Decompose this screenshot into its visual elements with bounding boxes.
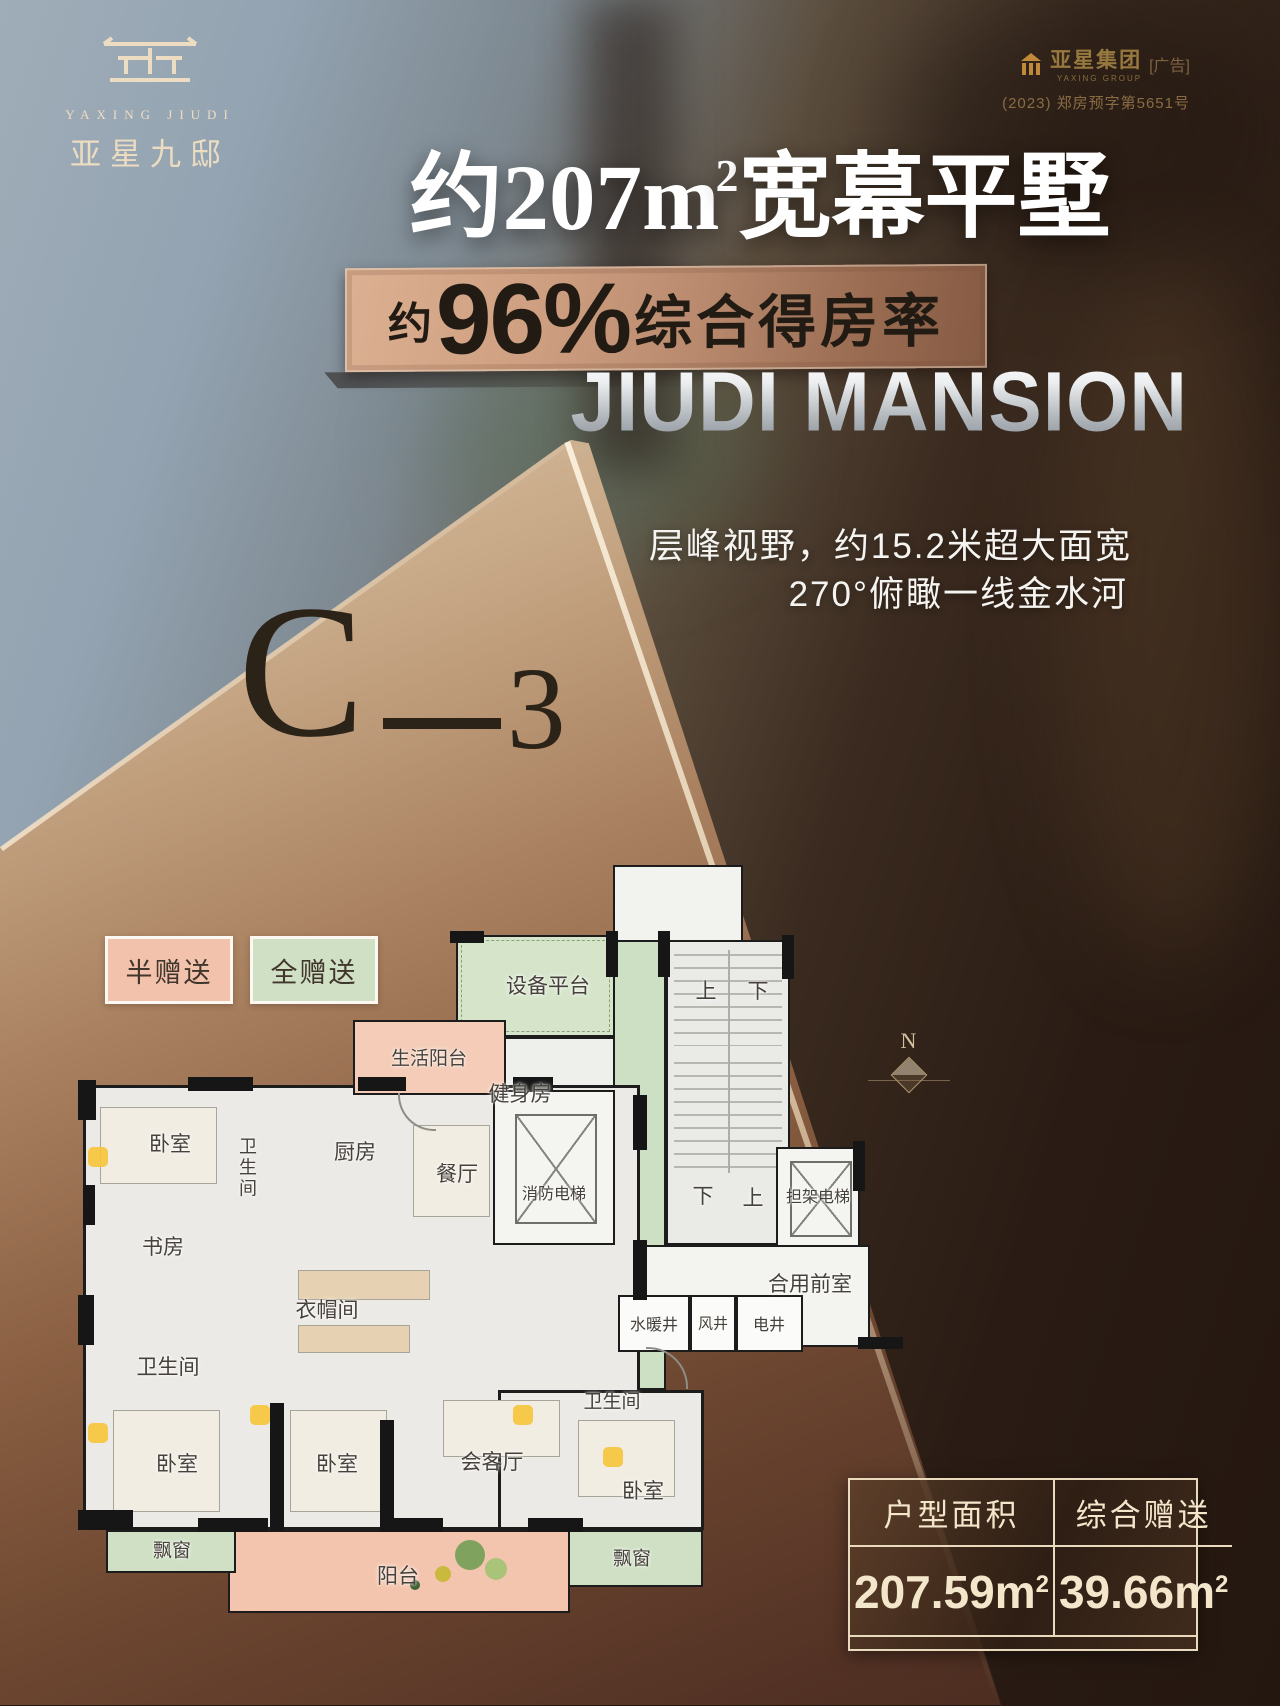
- wall: [633, 1240, 647, 1300]
- fire-elevator-room: [493, 1090, 615, 1245]
- wall: [78, 1080, 96, 1120]
- room-label-bath-se: 卫生间: [583, 1387, 640, 1414]
- top-entry-room: [613, 865, 743, 943]
- elevator-x-symbol: [515, 1114, 597, 1224]
- room-label-electric-shaft: 电井: [753, 1311, 785, 1335]
- wall: [858, 1337, 903, 1349]
- room-label-bedroom-nw: 卧室: [149, 1128, 191, 1158]
- wall: [380, 1420, 394, 1532]
- room-label-equipment-platform: 设备平台: [506, 970, 590, 1000]
- unit-number: 3: [507, 656, 566, 762]
- stair-label-down: 下: [748, 975, 769, 1005]
- light-dot: [603, 1447, 623, 1467]
- corp-name-en: YAXING GROUP: [1050, 74, 1142, 83]
- wall: [270, 1403, 284, 1531]
- presale-permit: (2023) 郑房预字第5651号: [1002, 92, 1190, 113]
- brand-logo: YAXING JIUDI 亚星九邸: [40, 34, 260, 174]
- north-compass: N: [886, 1028, 932, 1088]
- door-arc: [646, 1347, 688, 1389]
- room-label-balcony: 阳台: [377, 1560, 419, 1590]
- gift-area-sup: 2: [1215, 1571, 1228, 1598]
- gift-area-value: 39.66m: [1059, 1566, 1215, 1618]
- room-label-bath-north: 卫生间: [234, 1137, 260, 1200]
- light-dot: [88, 1423, 108, 1443]
- room-label-stretcher-elevator: 担架电梯: [786, 1183, 850, 1207]
- stair-label-up: 上: [696, 975, 717, 1005]
- selling-point-line2: 270°俯瞰一线金水河: [789, 566, 1128, 617]
- table-value-unit-area: 207.59m2: [850, 1547, 1053, 1635]
- yaxing-jiudi-logo-icon: [98, 34, 202, 96]
- room-label-bedroom-se: 卧室: [622, 1475, 664, 1505]
- wardrobe-shelf: [298, 1325, 410, 1353]
- wall: [658, 931, 670, 977]
- headline-area: 约207m: [410, 147, 720, 250]
- room-label-bedroom-s: 卧室: [316, 1448, 358, 1478]
- compass-diamond-icon: [891, 1057, 928, 1094]
- room-label-bay-window-sw: 飘窗: [153, 1536, 191, 1563]
- selling-point-line1: 层峰视野，约15.2米超大面宽: [649, 518, 1132, 569]
- wall: [528, 1518, 583, 1532]
- table-value-gift-area: 39.66m2: [1053, 1547, 1232, 1635]
- wall: [782, 935, 794, 979]
- light-dot: [250, 1405, 270, 1425]
- yaxing-group-logo-icon: [1019, 53, 1043, 75]
- table-bottom-strip: [850, 1635, 1196, 1649]
- wall: [388, 1518, 443, 1532]
- unit-label: C 3: [238, 582, 566, 763]
- corporate-block: 亚星集团 YAXING GROUP [广告] (2023) 郑房预字第5651号: [1002, 44, 1190, 113]
- light-dot: [88, 1147, 108, 1167]
- room-label-front-room: 合用前室: [768, 1268, 852, 1298]
- room-label-dining: 餐厅: [436, 1158, 478, 1188]
- stairwell: [666, 940, 790, 1245]
- floor-plan: 设备平台 健身房 生活阳台 上 下 消防电梯 下 上 担架电梯 合用前室 水暖井…: [58, 855, 873, 1620]
- wall: [358, 1077, 406, 1091]
- room-label-study: 书房: [142, 1231, 184, 1261]
- table-header-unit-area: 户型面积: [850, 1480, 1053, 1547]
- room-label-reception: 会客厅: [461, 1446, 524, 1476]
- room-label-life-balcony: 生活阳台: [391, 1044, 467, 1071]
- headline-sup: 2: [715, 150, 738, 201]
- room-label-gym: 健身房: [489, 1078, 552, 1108]
- room-label-bedroom-sw: 卧室: [156, 1448, 198, 1478]
- unit-area-value: 207.59m: [854, 1566, 1036, 1618]
- balcony-plant: [485, 1558, 507, 1580]
- unit-area-sup: 2: [1036, 1571, 1049, 1598]
- wall: [198, 1518, 268, 1532]
- room-label-bath-west: 卫生间: [137, 1351, 200, 1381]
- brand-logo-en: YAXING JIUDI: [40, 107, 260, 123]
- room-label-kitchen: 厨房: [334, 1136, 376, 1166]
- room-label-air-shaft: 风井: [698, 1313, 728, 1334]
- balcony-plant: [455, 1540, 485, 1570]
- wall: [188, 1077, 253, 1091]
- balcony-plant: [435, 1566, 451, 1582]
- area-info-table: 户型面积 综合赠送 207.59m2 39.66m2: [848, 1478, 1198, 1651]
- wall: [78, 1295, 94, 1345]
- room-label-cloakroom: 衣帽间: [296, 1294, 359, 1324]
- corp-name: 亚星集团: [1050, 44, 1142, 74]
- room-label-water-shaft: 水暖井: [630, 1311, 678, 1335]
- table-header-gift-area: 综合赠送: [1053, 1480, 1232, 1547]
- wall: [633, 1095, 647, 1150]
- ad-tag: [广告]: [1149, 52, 1190, 76]
- stair-label-down2: 下: [693, 1180, 714, 1210]
- room-label-fire-elevator: 消防电梯: [522, 1180, 586, 1204]
- wall: [83, 1185, 95, 1225]
- main-headline: 约207m2宽幕平墅: [395, 148, 1125, 250]
- headline-tail: 宽幕平墅: [738, 147, 1110, 250]
- stair-label-up2: 上: [743, 1182, 764, 1212]
- banner-prefix: 约: [388, 288, 432, 352]
- wall: [450, 931, 484, 943]
- light-dot: [513, 1405, 533, 1425]
- room-label-bay-window-se: 飘窗: [613, 1544, 651, 1571]
- unit-letter: C: [238, 582, 365, 763]
- unit-dash: [383, 718, 501, 729]
- compass-n-label: N: [886, 1028, 932, 1054]
- stair-divider: [728, 950, 730, 1173]
- wall: [853, 1141, 865, 1191]
- wall: [78, 1510, 133, 1530]
- brand-logo-cn: 亚星九邸: [40, 129, 260, 174]
- banner-suffix: 综合得房率: [634, 274, 944, 360]
- wall: [606, 931, 618, 977]
- english-subtitle: JIUDI MANSION: [571, 354, 1189, 451]
